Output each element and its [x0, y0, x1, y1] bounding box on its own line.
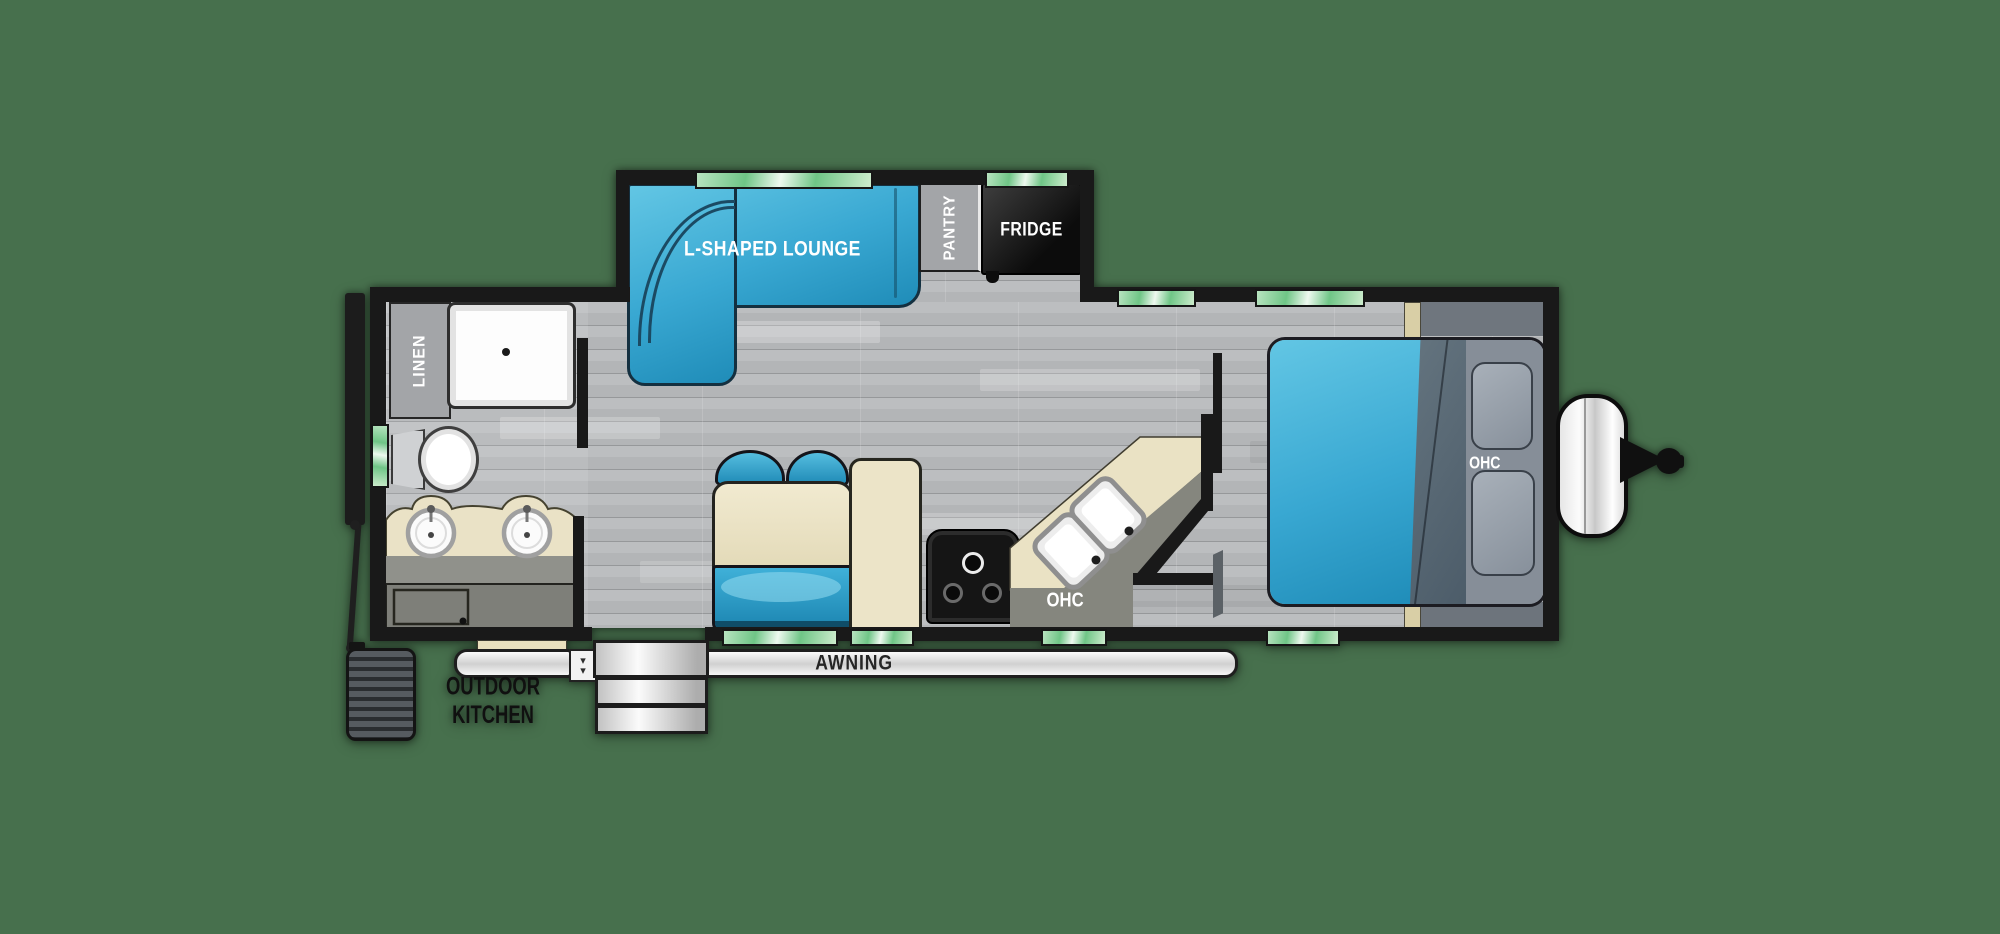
propane-tanks	[1556, 394, 1628, 538]
awning-bar: AWNING	[706, 649, 1238, 678]
window	[1255, 289, 1365, 307]
awning-label-wrap: AWNING	[794, 652, 914, 675]
window	[1117, 289, 1196, 307]
chevron-down-icon: ▾	[580, 656, 586, 666]
kitchen-end-wall	[1201, 414, 1213, 511]
slideout-wall-right	[1080, 170, 1094, 302]
hitch-stub	[1674, 455, 1684, 468]
vanity-drawer-knob	[460, 618, 467, 625]
entry-threshold-step	[593, 640, 709, 678]
window	[371, 424, 389, 488]
kitchen-lower-wall	[1133, 573, 1213, 585]
outdoor-kitchen-label-line1: OUTDOOR	[425, 671, 561, 700]
wall-top-left	[370, 287, 630, 302]
bathroom-wall-lower	[573, 516, 584, 629]
kitchen-sink-drain	[1125, 527, 1134, 536]
window	[985, 171, 1069, 188]
outdoor-kitchen-label-line2: KITCHEN	[425, 700, 561, 729]
window	[1266, 629, 1340, 646]
window	[850, 629, 914, 646]
chevron-down-icon: ▾	[580, 666, 586, 676]
propane-tank-seam	[1584, 398, 1596, 534]
awning-label: AWNING	[815, 651, 893, 676]
window	[722, 629, 838, 646]
bedroom-divider-wall	[1213, 353, 1222, 473]
bathroom-wall-upper	[577, 338, 588, 448]
kitchen-sink-drain	[1092, 556, 1101, 565]
entry-step	[595, 677, 708, 706]
slideout-wall-left	[616, 170, 629, 302]
vanity-counter-band	[386, 556, 577, 584]
kitchen-ohc-label-wrap: OHC	[1030, 588, 1100, 614]
entry-step	[595, 705, 708, 734]
floorplan: LINEN L-SHAPED LOUNGE PANTRY FRIDGE	[0, 0, 2000, 934]
window	[695, 171, 873, 189]
outdoor-kitchen-label: OUTDOOR KITCHEN	[425, 671, 561, 728]
fixtures-overlay	[0, 0, 2000, 934]
wall-bottom-left	[370, 627, 592, 641]
kitchen-ohc-label: OHC	[1046, 589, 1083, 613]
window	[1041, 629, 1107, 646]
floorplan-stage: LINEN L-SHAPED LOUNGE PANTRY FRIDGE	[0, 0, 2000, 934]
